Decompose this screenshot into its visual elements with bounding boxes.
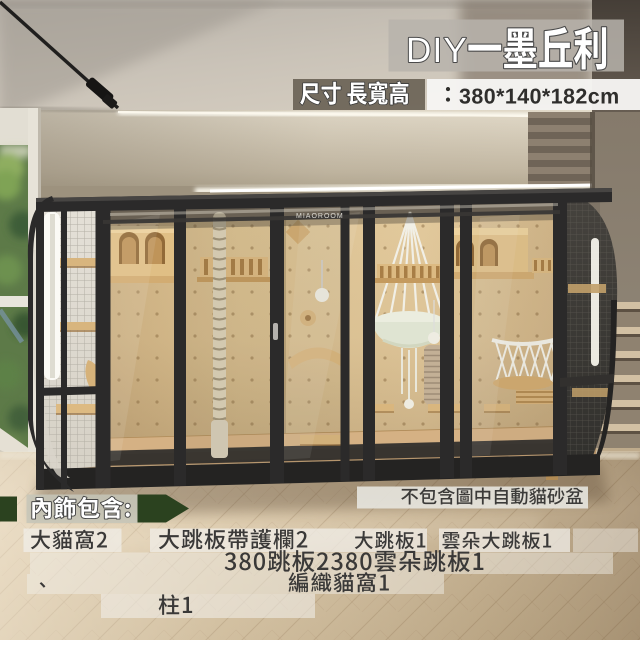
svg-text:MIAOROOM: MIAOROOM — [296, 213, 344, 220]
